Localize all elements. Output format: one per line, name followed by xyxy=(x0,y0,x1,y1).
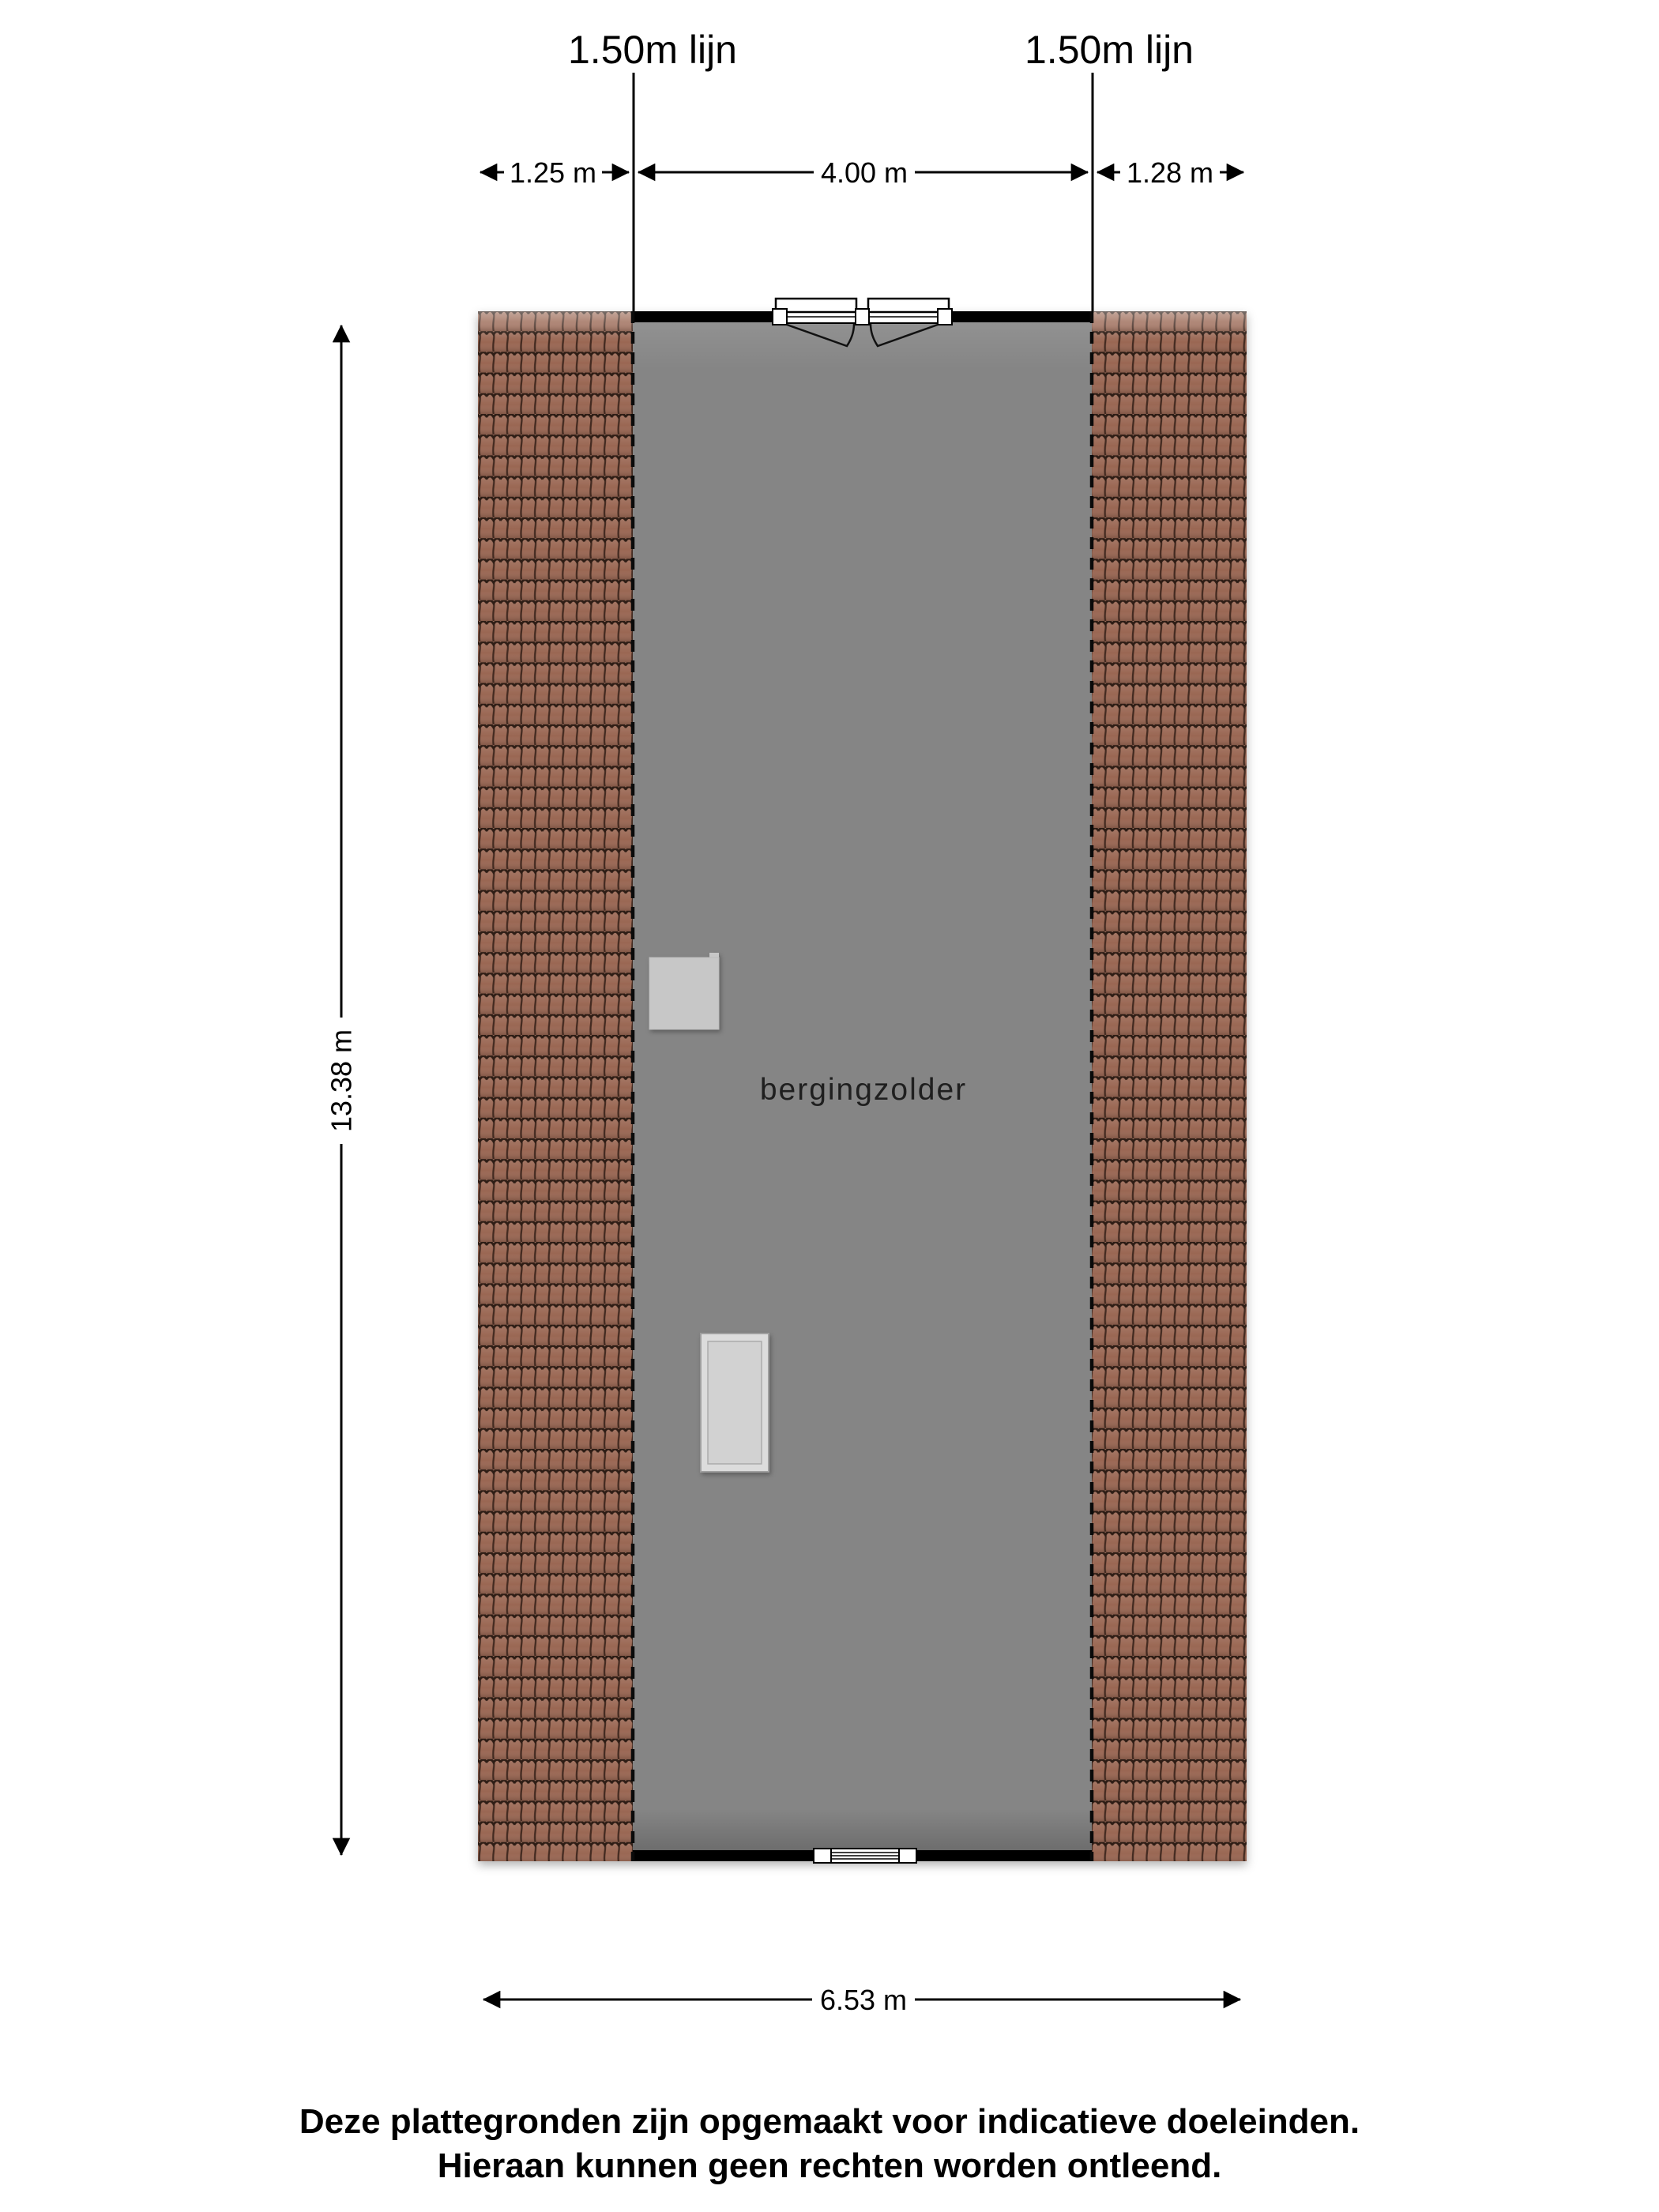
footer-line-1: Deze plattegronden zijn opgemaakt voor i… xyxy=(299,2102,1360,2141)
height-line-label-right: 1.50m lijn xyxy=(1025,28,1194,72)
dim-label-top-right: 1.28 m xyxy=(1127,156,1213,189)
footer-disclaimer: Deze plattegronden zijn opgemaakt voor i… xyxy=(299,2102,1360,2185)
hatch-inner xyxy=(708,1341,762,1464)
floor-top-shading xyxy=(633,322,1092,370)
footer-line-2: Hieraan kunnen geen rechten worden ontle… xyxy=(438,2146,1222,2185)
window-top-jamb-left xyxy=(773,309,787,325)
window-top-left-leaf xyxy=(776,299,856,312)
height-line-label-left: 1.50m lijn xyxy=(568,28,737,72)
skylight xyxy=(649,953,719,1029)
dim-label-bottom: 6.53 m xyxy=(820,1984,907,2016)
roof-left xyxy=(478,311,633,1861)
window-bottom-jamb-left xyxy=(814,1849,831,1863)
dim-label-top-left: 1.25 m xyxy=(510,156,596,189)
window-top-jamb-right xyxy=(938,309,952,325)
roof-right xyxy=(1092,311,1247,1861)
floor-hatch xyxy=(701,1334,769,1472)
skylight-panel xyxy=(649,957,719,1029)
floorplan-canvas: bergingzolder xyxy=(0,0,1659,2212)
room-label: bergingzolder xyxy=(760,1073,967,1107)
roof-right-eave-highlight xyxy=(1092,311,1247,338)
floor-plan: bergingzolder xyxy=(478,299,1247,1863)
floor-bottom-shading xyxy=(633,1809,1092,1850)
window-bottom xyxy=(814,1849,916,1863)
window-top-right-leaf xyxy=(868,299,949,312)
roof-left-eave-highlight xyxy=(478,311,633,338)
dim-label-side: 13.38 m xyxy=(325,1029,358,1132)
dim-label-top-middle: 4.00 m xyxy=(821,156,908,189)
window-top-jamb-middle xyxy=(856,309,869,325)
window-bottom-jamb-right xyxy=(899,1849,916,1863)
